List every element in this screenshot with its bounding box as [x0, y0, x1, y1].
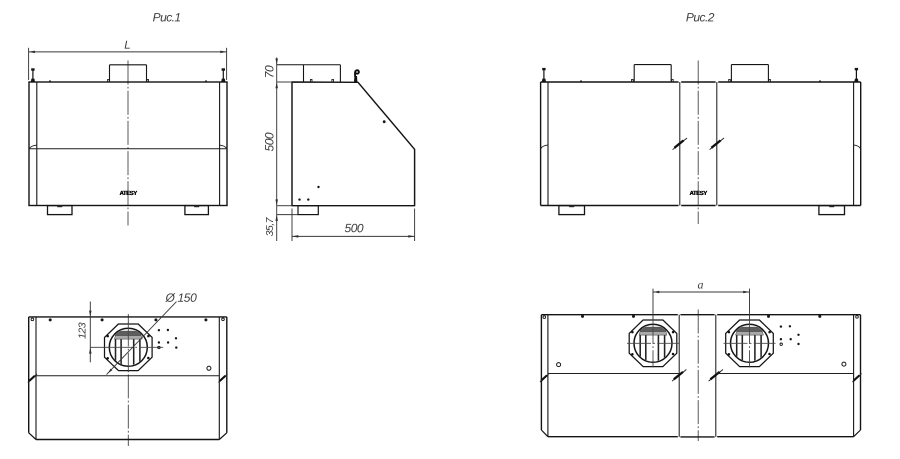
svg-text:a: a — [697, 277, 703, 291]
svg-text:35,7: 35,7 — [264, 216, 276, 236]
svg-text:Рис.1: Рис.1 — [153, 10, 181, 24]
svg-text:70: 70 — [263, 65, 277, 78]
svg-text:L: L — [124, 40, 130, 52]
svg-text:123: 123 — [77, 322, 89, 339]
svg-text:Ø 150: Ø 150 — [165, 291, 198, 305]
svg-text:500: 500 — [345, 221, 364, 235]
svg-text:Рис.2: Рис.2 — [686, 10, 715, 24]
svg-text:ATESY: ATESY — [120, 191, 138, 197]
svg-text:500: 500 — [262, 132, 276, 151]
svg-text:ATESY: ATESY — [690, 191, 708, 197]
